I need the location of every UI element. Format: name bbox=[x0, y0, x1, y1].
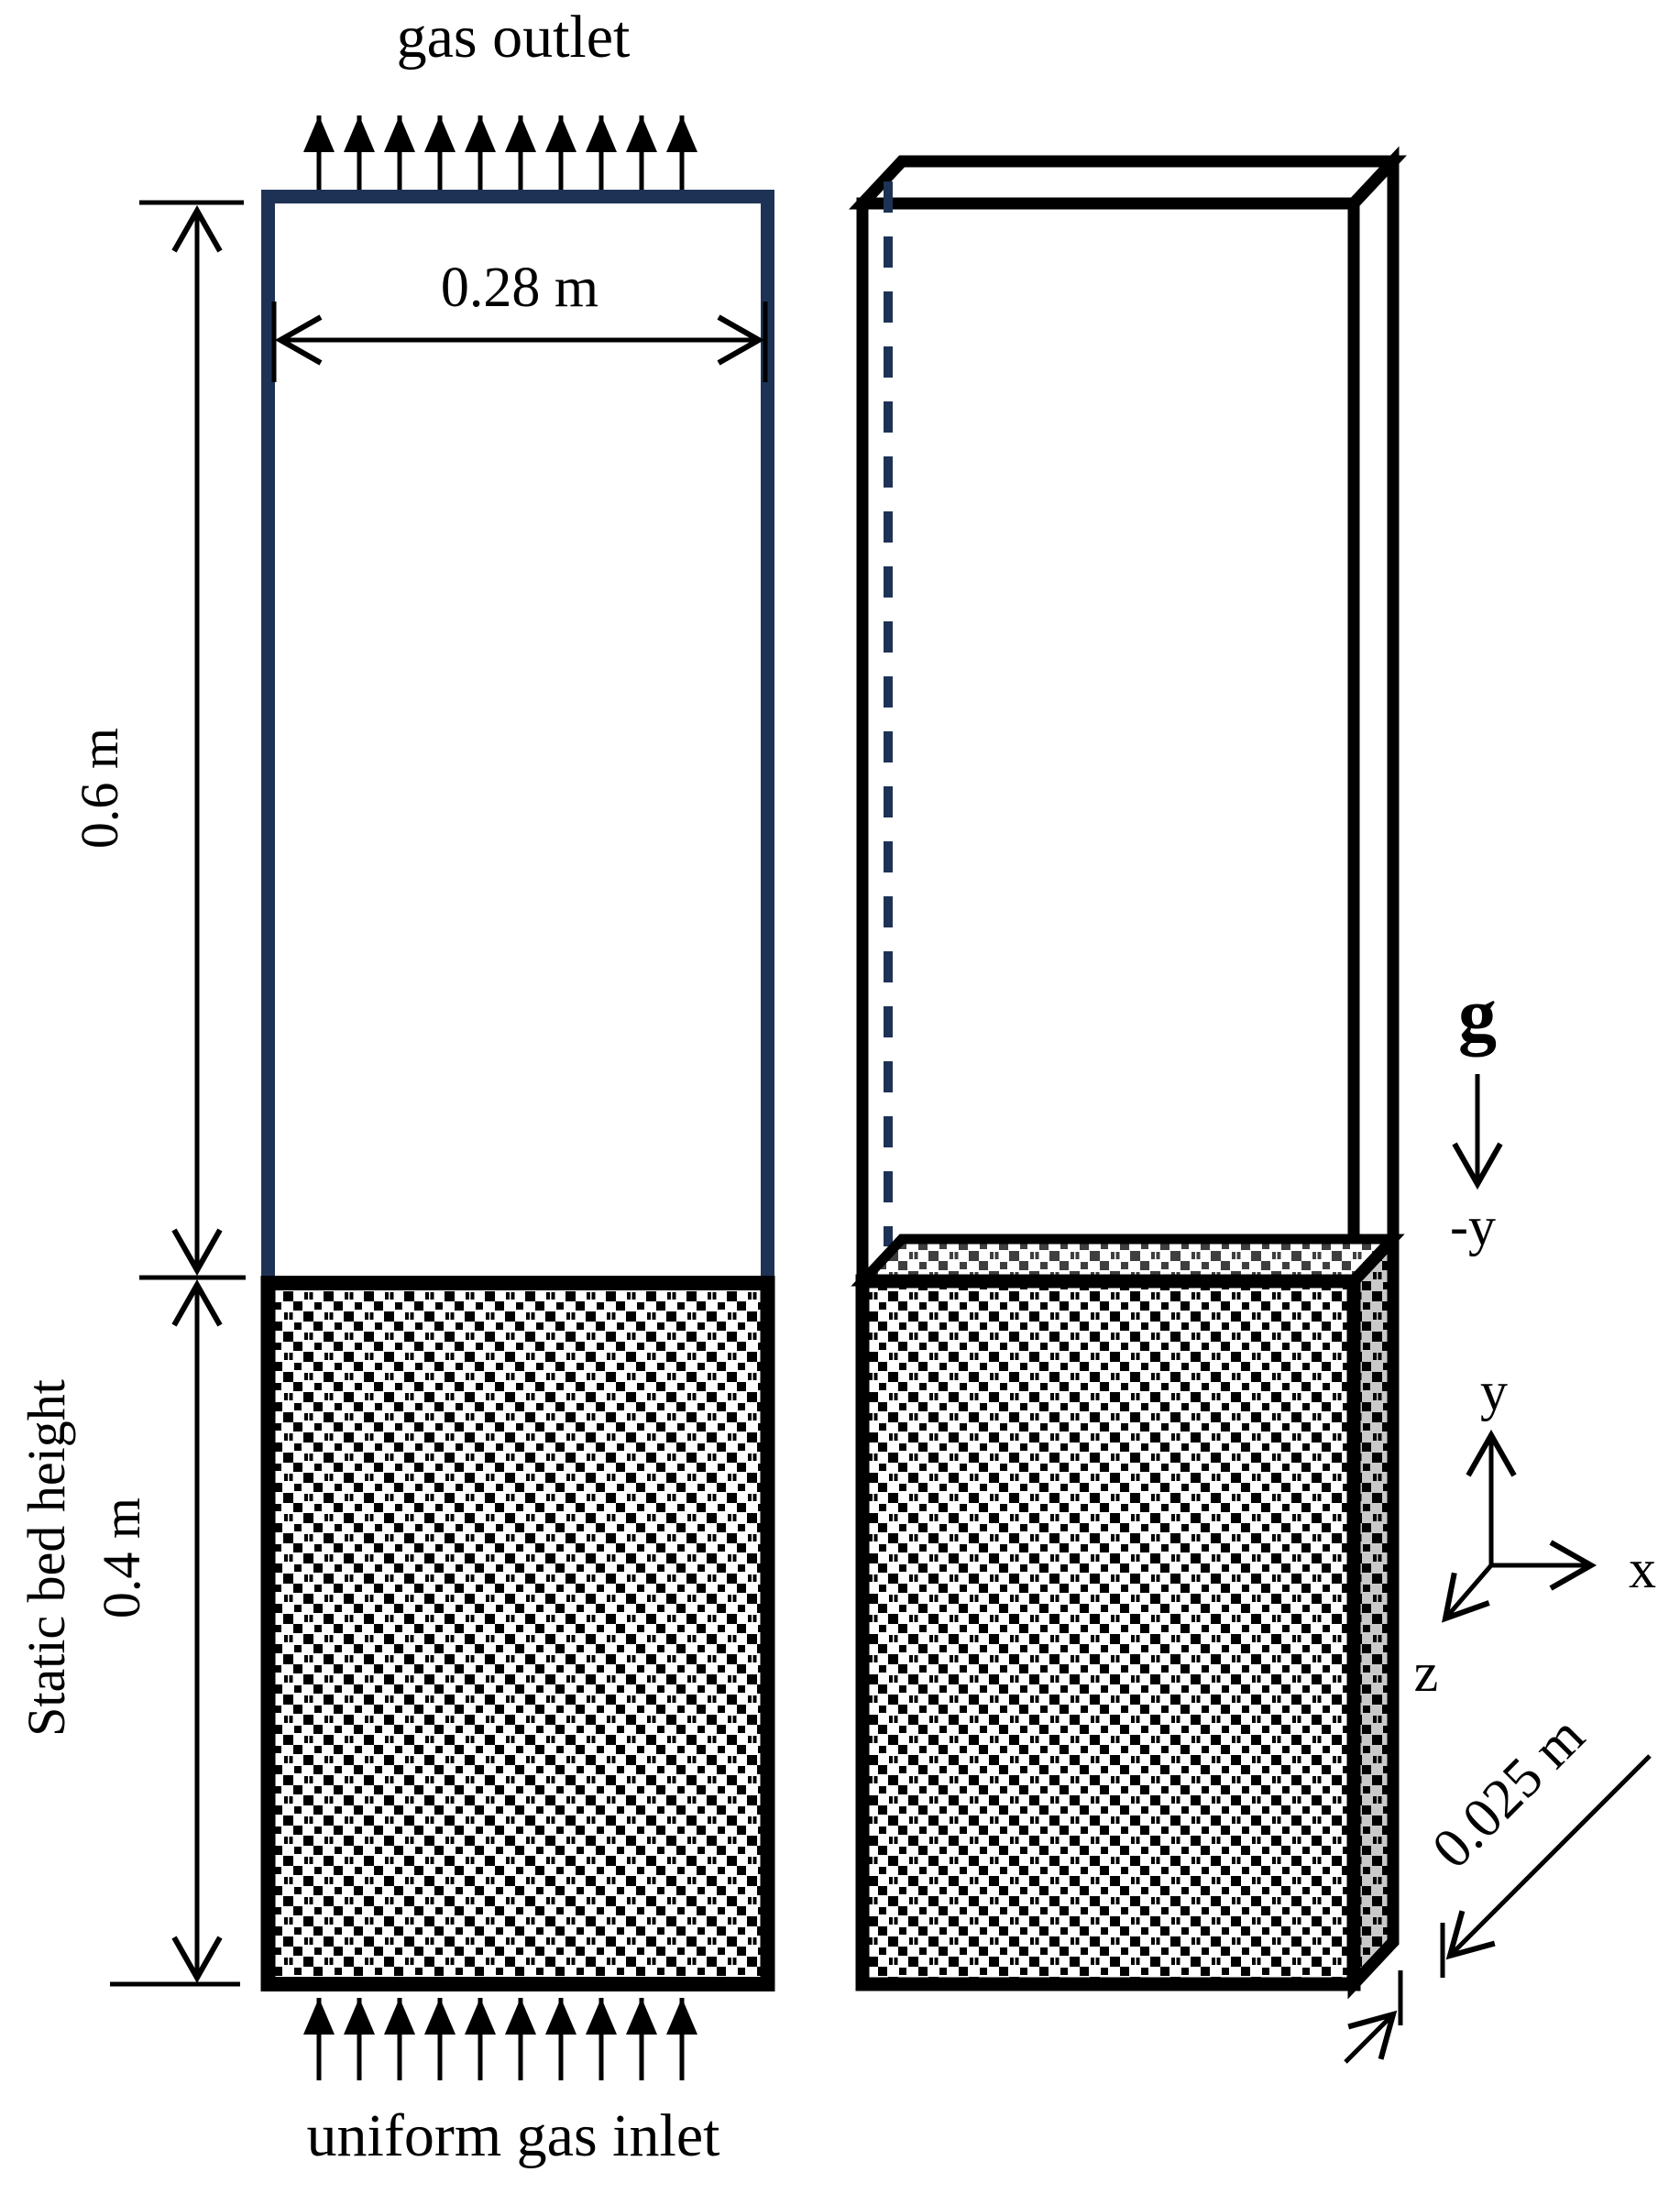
iso-front-freeboard bbox=[862, 203, 1354, 1281]
diagram-canvas: gas outlet 0.28 m bbox=[0, 0, 1680, 2194]
gas-inlet-arrows bbox=[319, 1998, 682, 2080]
fluidized-bed-schematic: gas outlet 0.28 m bbox=[0, 0, 1680, 2194]
z-axis-arrow-icon bbox=[1445, 1565, 1491, 1618]
depth-dimension-label: 0.025 m bbox=[1421, 1705, 1597, 1881]
bed-height-dimension: Static bed height 0.4 m bbox=[16, 1278, 246, 1984]
gas-outlet-label: gas outlet bbox=[397, 4, 631, 71]
width-dimension-label: 0.28 m bbox=[441, 257, 598, 319]
y-axis-label: y bbox=[1480, 1361, 1508, 1421]
gas-outlet-arrows bbox=[319, 115, 682, 194]
iso-view: g -y y x z 0.025 m bbox=[862, 161, 1656, 2062]
gravity-symbol-label: g bbox=[1458, 972, 1497, 1058]
z-axis-label: z bbox=[1414, 1642, 1439, 1703]
static-bed-section bbox=[269, 1283, 768, 1984]
depth-dimension-line-lower bbox=[1345, 2014, 1393, 2062]
gravity-vector: g -y bbox=[1450, 972, 1497, 1256]
gravity-direction-label: -y bbox=[1450, 1196, 1496, 1256]
freeboard-section bbox=[269, 197, 768, 1283]
iso-front-bed bbox=[862, 1281, 1354, 1984]
static-bed-height-value: 0.4 m bbox=[92, 1497, 151, 1618]
coordinate-axes: y x z bbox=[1414, 1361, 1656, 1703]
freeboard-height-label: 0.6 m bbox=[70, 728, 129, 849]
iso-top-face bbox=[862, 161, 1393, 203]
gas-inlet-label: uniform gas inlet bbox=[307, 2102, 720, 2169]
x-axis-label: x bbox=[1629, 1539, 1656, 1599]
front-view: gas outlet 0.28 m bbox=[16, 4, 768, 2169]
static-bed-height-label: Static bed height bbox=[16, 1379, 76, 1737]
freeboard-height-dimension: 0.6 m bbox=[70, 203, 244, 1270]
